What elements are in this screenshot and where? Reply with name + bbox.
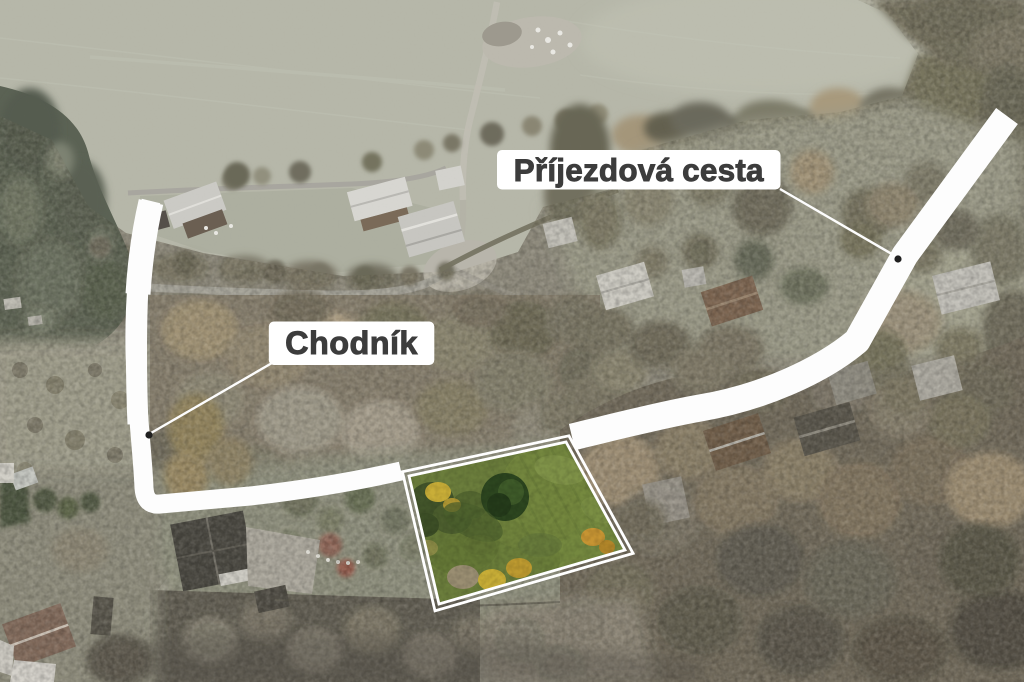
- svg-text:Chodník: Chodník: [285, 325, 418, 361]
- svg-text:Příjezdová cesta: Příjezdová cesta: [514, 152, 764, 188]
